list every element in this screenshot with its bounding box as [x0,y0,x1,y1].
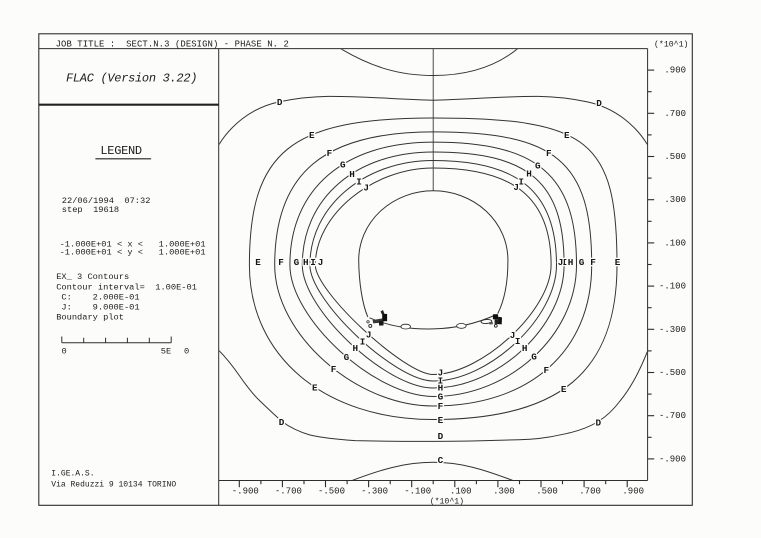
svg-text:H: H [349,169,355,180]
svg-text:F: F [331,364,337,375]
svg-text:C: C [438,455,444,466]
svg-text:D: D [279,417,285,428]
svg-text:J: J [363,183,369,194]
svg-text:.300: .300 [664,195,686,205]
svg-text:-.500: -.500 [659,368,686,378]
svg-text:-.700: -.700 [659,411,686,421]
svg-text:E: E [564,130,570,141]
svg-text:.700: .700 [664,109,686,119]
svg-text:LEGEND: LEGEND [100,144,142,158]
svg-text:Boundary plot: Boundary plot [56,313,124,323]
svg-text:J: J [438,368,444,379]
svg-text:JOB TITLE : SECT.N.3 (DESIGN): JOB TITLE : SECT.N.3 (DESIGN) - PHASE N.… [56,39,289,49]
svg-text:I.GE.A.S.: I.GE.A.S. [51,470,94,479]
svg-text:E: E [438,415,444,426]
svg-text:F: F [544,365,550,376]
svg-text:.300: .300 [493,487,515,497]
svg-text:G: G [294,257,300,268]
svg-text:.700: .700 [579,487,601,497]
svg-text:.900: .900 [622,487,644,497]
svg-text:.100: .100 [664,238,686,248]
svg-text:H: H [353,343,359,354]
svg-text:H: H [526,168,532,179]
svg-text:G: G [535,160,541,171]
svg-text:J: J [558,257,564,268]
svg-text:E: E [312,382,318,393]
svg-text:C: 2.000E-01: C: 2.000E-01 [56,293,139,303]
svg-text:0: 0 [62,347,67,357]
svg-text:-.900: -.900 [659,454,686,464]
svg-text:F: F [590,257,596,268]
svg-text:G: G [531,352,537,363]
svg-text:G: G [344,352,350,363]
svg-text:.500: .500 [536,487,558,497]
svg-text:I: I [515,336,521,347]
svg-text:E: E [255,257,261,268]
svg-text:F: F [438,401,444,412]
svg-text:Contour interval= 1.00E-01: Contour interval= 1.00E-01 [56,282,197,292]
svg-text:E: E [561,384,567,395]
svg-text:F: F [546,148,552,159]
svg-text:.900: .900 [664,66,686,76]
svg-text:-.900: -.900 [232,487,259,497]
svg-text:Via Reduzzi 9 10134 TORINO: Via Reduzzi 9 10134 TORINO [51,481,176,490]
svg-text:I: I [518,176,524,187]
svg-text:G: G [340,160,346,171]
svg-text:0: 0 [184,347,189,357]
svg-text:D: D [438,431,444,442]
svg-text:-1.000E+01 < y < 1.000E+01: -1.000E+01 < y < 1.000E+01 [60,248,206,258]
svg-text:H: H [568,257,574,268]
svg-text:I: I [310,257,316,268]
svg-text:-.500: -.500 [318,487,345,497]
svg-text:.100: .100 [450,487,472,497]
svg-text:D: D [596,418,602,429]
svg-text:H: H [303,257,309,268]
svg-text:D: D [277,97,283,108]
svg-text:step 19618: step 19618 [62,205,119,215]
svg-text:-.100: -.100 [659,282,686,292]
svg-text:F: F [327,148,333,159]
svg-text:J: J [510,330,516,341]
svg-text:-.700: -.700 [275,487,302,497]
svg-text:I: I [356,176,362,187]
svg-text:D: D [596,98,602,109]
svg-text:5E: 5E [161,347,171,357]
svg-text:G: G [579,257,585,268]
svg-text:H: H [522,343,528,354]
svg-text:.500: .500 [664,152,686,162]
svg-text:J: 9.000E-01: J: 9.000E-01 [56,303,139,313]
svg-text:I: I [360,337,366,348]
svg-text:EX_ 3 Contours: EX_ 3 Contours [56,272,129,282]
svg-text:E: E [615,257,621,268]
svg-text:-.100: -.100 [404,487,431,497]
svg-text:J: J [366,330,372,341]
svg-text:-.300: -.300 [361,487,388,497]
svg-text:F: F [278,257,284,268]
svg-text:(*10^1): (*10^1) [430,496,464,506]
svg-text:-.300: -.300 [659,325,686,335]
svg-text:(*10^1): (*10^1) [654,40,688,50]
svg-text:J: J [318,257,324,268]
svg-text:FLAC (Version 3.22): FLAC (Version 3.22) [66,72,197,86]
svg-text:E: E [309,130,315,141]
svg-text:J: J [513,182,519,193]
